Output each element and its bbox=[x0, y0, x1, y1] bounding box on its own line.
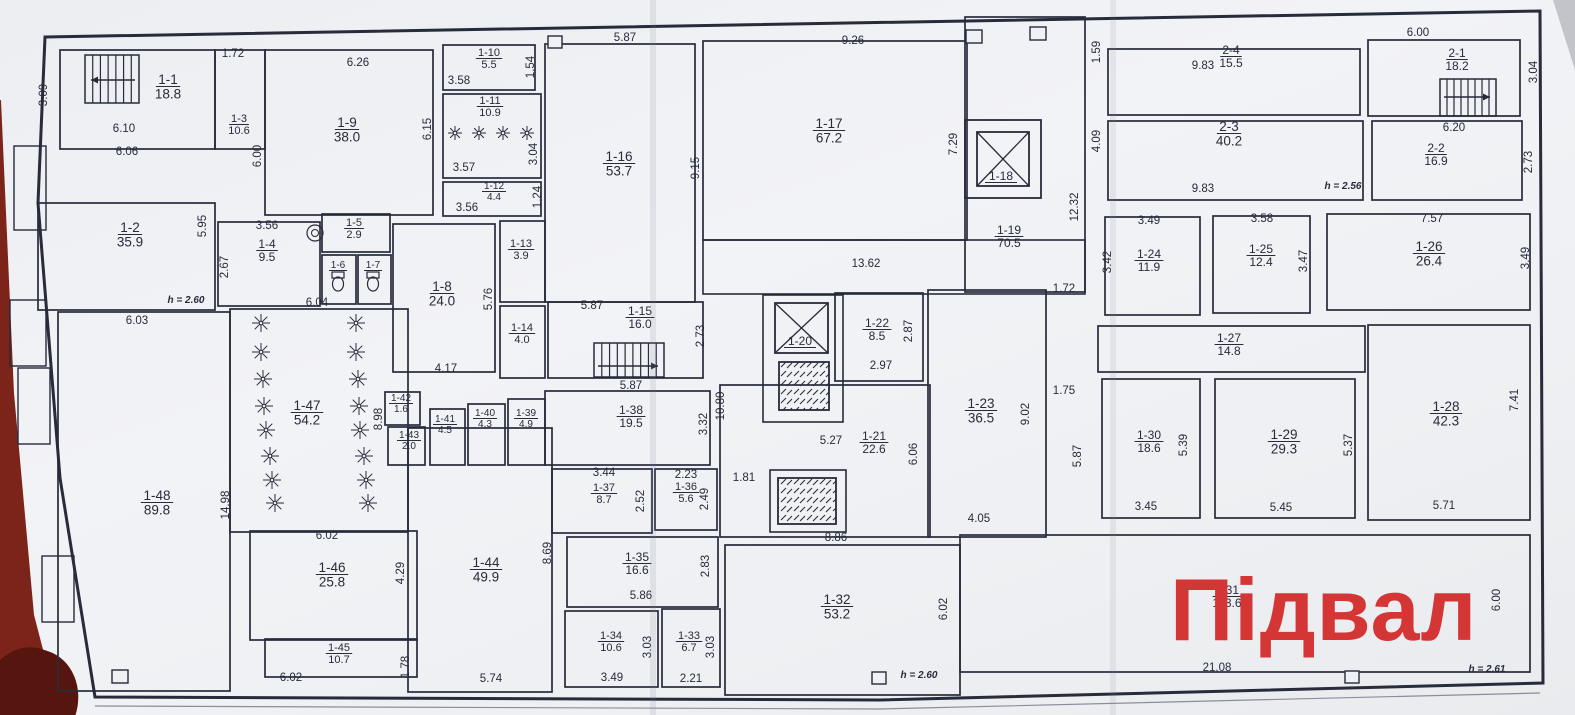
dimension-label: 1.75 bbox=[1053, 385, 1075, 397]
room-id: 1-9 bbox=[337, 115, 357, 130]
room-id: 1-40 bbox=[475, 408, 495, 419]
room-area: 67.2 bbox=[816, 131, 842, 146]
dimension-label: 5.37 bbox=[1343, 434, 1355, 456]
dimension-label: 3.03 bbox=[642, 636, 654, 658]
fixture-symbol bbox=[472, 126, 486, 140]
room-area: 4.5 bbox=[438, 425, 452, 436]
wall-pier bbox=[1030, 27, 1046, 40]
dimension-label: 21.08 bbox=[1203, 662, 1232, 674]
room-1-43: 1-432.0 bbox=[388, 427, 425, 465]
dimension-label: 6.03 bbox=[126, 315, 148, 327]
room-id: 1-44 bbox=[472, 555, 500, 570]
dimension-label: 14.98 bbox=[220, 491, 232, 520]
height-note: h = 2.56 bbox=[1325, 181, 1362, 192]
sink-symbol bbox=[312, 230, 319, 237]
dimension-label: 3.04 bbox=[528, 142, 540, 165]
room-1-9: 1-938.0 bbox=[265, 50, 433, 215]
dimension-label: 3.44 bbox=[593, 467, 616, 479]
dimension-label: 3.45 bbox=[1135, 501, 1157, 513]
room-area: 19.5 bbox=[619, 416, 643, 430]
floorplan-svg: 1-118.81-310.61-938.01-235.91-49.51-52.9… bbox=[0, 0, 1575, 715]
room-area: 8.7 bbox=[596, 494, 611, 506]
room-area: 54.2 bbox=[294, 413, 320, 428]
dimension-label: 2.23 bbox=[675, 469, 697, 481]
room-id: 1-34 bbox=[600, 630, 622, 642]
room-area: 25.8 bbox=[319, 575, 345, 590]
room-id: 1-24 bbox=[1137, 247, 1161, 261]
wall-outline bbox=[703, 240, 1085, 294]
window-bay bbox=[18, 368, 50, 444]
height-note: h = 2.60 bbox=[901, 670, 938, 681]
room-id: 1-41 bbox=[435, 414, 455, 425]
dimension-label: 7.57 bbox=[1421, 213, 1443, 225]
paper-fold-line bbox=[1110, 0, 1116, 715]
room-1-7: 1-7 bbox=[358, 255, 391, 304]
room-1-44: 1-4449.9 bbox=[408, 428, 552, 692]
room-id: 1-47 bbox=[293, 398, 320, 413]
room-id: 1-15 bbox=[628, 304, 652, 318]
room-1-38: 1-3819.5 bbox=[545, 391, 710, 465]
dimension-label: 5.87 bbox=[614, 32, 636, 44]
room-id: 1-1 bbox=[158, 72, 178, 87]
dimension-label: 9.02 bbox=[1020, 403, 1032, 425]
room-area: 18.2 bbox=[1445, 59, 1469, 73]
room-1-1: 1-118.8 bbox=[60, 50, 215, 149]
room-area: 10.7 bbox=[328, 654, 349, 666]
room-id: 1-19 bbox=[997, 223, 1021, 237]
dimension-label: 1.54 bbox=[525, 55, 537, 78]
room-area: 4.0 bbox=[514, 334, 529, 346]
room-id: 1-23 bbox=[967, 396, 994, 411]
room-id: 1-2 bbox=[120, 220, 140, 235]
dimension-label: 6.00 bbox=[252, 145, 264, 167]
room-id: 1-45 bbox=[328, 642, 350, 654]
dimension-label: 8.69 bbox=[542, 542, 554, 564]
fixture-symbol bbox=[349, 370, 367, 388]
room-area: 15.5 bbox=[1219, 56, 1243, 70]
fixture-symbol bbox=[263, 471, 281, 489]
dimension-label: 6.02 bbox=[280, 672, 302, 684]
stair-direction-arrow bbox=[91, 77, 98, 84]
fixture-symbol bbox=[520, 126, 534, 140]
dimension-label: 6.26 bbox=[347, 57, 369, 69]
room-area: 5.5 bbox=[481, 59, 496, 71]
room-1-28: 1-2842.3 bbox=[1368, 325, 1530, 520]
dimension-label: 4.29 bbox=[395, 562, 407, 584]
dimension-label: 12.32 bbox=[1069, 193, 1081, 222]
dimension-label: 6.15 bbox=[422, 118, 434, 140]
dimension-label: 5.71 bbox=[1433, 500, 1455, 512]
room-id: 1-3 bbox=[231, 113, 247, 125]
dimension-label: 1.78 bbox=[400, 656, 412, 678]
dimension-label: 2.52 bbox=[635, 490, 647, 512]
room-id: 1-17 bbox=[815, 116, 842, 131]
dimension-label: 3.49 bbox=[1138, 215, 1160, 227]
fixture-symbol bbox=[357, 471, 375, 489]
fixture-symbol bbox=[496, 126, 510, 140]
dimension-label: 2.49 bbox=[699, 488, 711, 510]
dimension-label: 5.87 bbox=[581, 300, 603, 312]
dimension-label: 4.09 bbox=[1091, 130, 1103, 152]
fixture-symbol bbox=[261, 447, 279, 465]
wall-pier bbox=[112, 670, 128, 683]
height-note: h = 2.60 bbox=[168, 295, 205, 306]
dimension-label: 6.20 bbox=[1443, 122, 1465, 134]
room-area: 53.2 bbox=[824, 607, 850, 622]
room-id: 1-10 bbox=[478, 47, 500, 59]
dimension-label: 3.49 bbox=[1520, 247, 1532, 269]
wall-pier bbox=[548, 36, 562, 48]
room-area: 29.3 bbox=[1271, 442, 1297, 457]
room-area: 16.6 bbox=[625, 563, 649, 577]
floorplan-photo: 1-118.81-310.61-938.01-235.91-49.51-52.9… bbox=[0, 0, 1575, 715]
toilet-symbol bbox=[367, 272, 379, 291]
room-1-14: 1-144.0 bbox=[500, 306, 545, 378]
room-id: 2-2 bbox=[1427, 141, 1445, 155]
staircase bbox=[85, 55, 139, 103]
room-id: 1-38 bbox=[619, 403, 643, 417]
room-area: 26.4 bbox=[1416, 254, 1443, 269]
room-2-1: 2-118.2 bbox=[1368, 40, 1520, 116]
fixture-symbol bbox=[252, 343, 270, 361]
room-area: 49.9 bbox=[473, 570, 499, 585]
room-area: 10.6 bbox=[228, 125, 249, 137]
dimension-label: 3.03 bbox=[705, 636, 717, 658]
dimension-label: 3.56 bbox=[456, 202, 478, 214]
dimension-label: 4.05 bbox=[968, 513, 990, 525]
room-1-39: 1-394.9 bbox=[508, 399, 545, 465]
dimension-label: 8.86 bbox=[825, 532, 847, 544]
dimension-label: 6.10 bbox=[113, 123, 135, 135]
room-area: 11.9 bbox=[1138, 260, 1161, 274]
dimension-label: 5.74 bbox=[480, 673, 503, 685]
room-id: 1-33 bbox=[678, 630, 700, 642]
dimension-label: 3.58 bbox=[1251, 213, 1273, 225]
room-1-4: 1-49.5 bbox=[218, 222, 320, 306]
room-id: 2-3 bbox=[1219, 119, 1239, 134]
dimension-label: 5.39 bbox=[1178, 434, 1190, 456]
room-area: 42.3 bbox=[1433, 414, 1459, 429]
room-1-27: 1-2714.8 bbox=[1098, 326, 1365, 372]
room-id: 1-27 bbox=[1217, 331, 1241, 345]
room-area: 10.6 bbox=[600, 642, 621, 654]
dimension-label: 3.58 bbox=[448, 75, 470, 87]
dimension-label: 6.06 bbox=[908, 443, 920, 465]
dimension-label: 9.83 bbox=[1192, 183, 1214, 195]
staircase bbox=[594, 343, 664, 377]
dimension-label: 3.32 bbox=[698, 413, 710, 435]
dimension-label: 10.80 bbox=[715, 392, 727, 421]
room-area: 2.0 bbox=[402, 441, 416, 452]
dimension-label: 5.87 bbox=[620, 380, 642, 392]
dimension-label: 6.00 bbox=[1407, 27, 1429, 39]
room-1-5: 1-52.9 bbox=[322, 214, 390, 252]
dimension-label: 5.87 bbox=[1072, 445, 1084, 467]
fixture-symbol bbox=[255, 397, 273, 415]
elevator-shaft: 1-20 bbox=[775, 303, 828, 353]
room-area: 40.2 bbox=[1216, 134, 1242, 149]
room-id: 1-12 bbox=[484, 181, 504, 192]
dimension-label: 5.95 bbox=[197, 215, 209, 237]
room-id: 1-30 bbox=[1137, 428, 1161, 442]
dimension-label: 3.42 bbox=[1102, 251, 1114, 273]
room-1-42: 1-421.6 bbox=[385, 392, 420, 425]
room-id: 1-37 bbox=[593, 482, 615, 494]
room-id: 1-48 bbox=[143, 488, 170, 503]
room-id: 2-4 bbox=[1222, 43, 1240, 57]
room-area: 2.9 bbox=[346, 229, 361, 241]
room-area: 53.7 bbox=[606, 164, 632, 179]
room-id: 1-21 bbox=[862, 429, 886, 443]
dimension-label: 1.59 bbox=[1091, 41, 1103, 63]
room-area: 18.6 bbox=[1137, 441, 1161, 455]
room-id: 1-16 bbox=[605, 149, 632, 164]
room-1-41: 1-414.5 bbox=[430, 409, 465, 465]
room-area: 5.6 bbox=[678, 493, 693, 505]
room-1-17: 1-1767.2 bbox=[703, 41, 967, 240]
dimension-label: 2.21 bbox=[680, 673, 702, 685]
room-1-19: 1-1970.5 bbox=[965, 17, 1085, 292]
fixture-symbol bbox=[257, 421, 275, 439]
room-id: 1-14 bbox=[511, 322, 533, 334]
room-area: 14.8 bbox=[1217, 344, 1241, 358]
wall-pier bbox=[872, 672, 886, 684]
fixture-symbol bbox=[355, 447, 373, 465]
fixture-symbol bbox=[254, 370, 272, 388]
fixture-symbol bbox=[347, 343, 365, 361]
fixture-symbol bbox=[266, 494, 284, 512]
dimension-label: 5.86 bbox=[630, 590, 652, 602]
room-id: 1-26 bbox=[1415, 239, 1442, 254]
fixture-symbol bbox=[350, 397, 368, 415]
room-id: 1-29 bbox=[1270, 427, 1297, 442]
wall-pier bbox=[966, 30, 982, 43]
room-area: 70.5 bbox=[997, 236, 1021, 250]
room-area: 4.4 bbox=[487, 192, 501, 203]
toilet-symbol bbox=[332, 272, 344, 291]
room-id: 1-20 bbox=[788, 334, 812, 348]
dimension-label: 8.98 bbox=[373, 408, 385, 430]
fixture-symbol bbox=[359, 494, 377, 512]
dimension-label: 7.41 bbox=[1509, 389, 1521, 411]
room-1-46: 1-4625.8 bbox=[250, 531, 417, 640]
room-id: 1-4 bbox=[258, 237, 276, 251]
room-id: 1-35 bbox=[625, 550, 649, 564]
room-area: 8.5 bbox=[869, 329, 886, 343]
dimension-label: 6.00 bbox=[1491, 589, 1503, 611]
fixture-symbol bbox=[351, 421, 369, 439]
room-id: 1-28 bbox=[1432, 399, 1459, 414]
dimension-label: 1.72 bbox=[222, 48, 244, 60]
wall-pier bbox=[1345, 671, 1359, 683]
room-1-13: 1-133.9 bbox=[500, 221, 545, 302]
room-1-29: 1-2929.3 bbox=[1215, 379, 1355, 518]
dimension-label: 7.29 bbox=[948, 133, 960, 155]
dimension-label: 1.72 bbox=[1053, 283, 1075, 295]
floor-title: Підвал bbox=[1170, 560, 1477, 659]
fixture-symbol bbox=[252, 314, 270, 332]
room-1-25: 1-2512.4 bbox=[1213, 216, 1310, 313]
room-area: 16.0 bbox=[628, 317, 652, 331]
room-id: 1-8 bbox=[432, 279, 452, 294]
dimension-label: 3.09 bbox=[38, 84, 50, 106]
room-id: 1-7 bbox=[366, 260, 381, 271]
staircase bbox=[1440, 79, 1496, 116]
room-area: 16.9 bbox=[1424, 154, 1448, 168]
room-id: 1-36 bbox=[675, 481, 697, 493]
dimension-label: 2.67 bbox=[219, 256, 231, 278]
room-id: 1-13 bbox=[510, 238, 532, 250]
room-area: 35.9 bbox=[117, 235, 143, 250]
room-1-40: 1-404.3 bbox=[468, 404, 505, 465]
dimension-label: 4.17 bbox=[435, 363, 457, 375]
room-1-16: 1-1653.7 bbox=[545, 44, 695, 302]
room-area: 6.7 bbox=[681, 642, 696, 654]
room-area: 89.8 bbox=[144, 503, 170, 518]
room-area: 3.9 bbox=[513, 250, 528, 262]
room-1-26: 1-2626.4 bbox=[1327, 214, 1530, 310]
room-area: 12.4 bbox=[1249, 255, 1273, 269]
dimension-label: 6.02 bbox=[938, 598, 950, 620]
room-area: 36.5 bbox=[968, 411, 994, 426]
dimension-label: 3.04 bbox=[1528, 60, 1540, 83]
dimension-label: 2.73 bbox=[695, 325, 707, 347]
room-id: 1-5 bbox=[346, 217, 362, 229]
dimension-label: 9.26 bbox=[842, 35, 864, 47]
dimension-label: 1.81 bbox=[733, 472, 755, 484]
room-id: 1-25 bbox=[1249, 242, 1273, 256]
dimension-label: 2.87 bbox=[903, 320, 915, 342]
dimension-label: 3.56 bbox=[256, 220, 278, 232]
elevator-shaft: 1-18 bbox=[965, 120, 1041, 198]
room-id: 1-43 bbox=[399, 430, 419, 441]
dimension-label: 3.47 bbox=[1298, 250, 1310, 272]
room-1-3: 1-310.6 bbox=[215, 50, 265, 149]
room-id: 1-46 bbox=[318, 560, 345, 575]
dimension-label: 6.06 bbox=[116, 146, 138, 158]
dimension-label: 6.04 bbox=[306, 297, 329, 309]
room-id: 1-22 bbox=[865, 316, 889, 330]
dimension-label: 3.49 bbox=[601, 672, 623, 684]
dimension-label: 1.24 bbox=[532, 185, 544, 208]
dimension-label: 5.76 bbox=[483, 288, 495, 310]
room-area: 24.0 bbox=[429, 294, 455, 309]
height-note: h = 2.61 bbox=[1469, 664, 1506, 675]
room-id: 1-39 bbox=[516, 408, 536, 419]
vent-shaft-hatched bbox=[779, 362, 829, 410]
dimension-label: 3.57 bbox=[453, 162, 475, 174]
fixture-symbol bbox=[448, 126, 462, 140]
dimension-label: 13.62 bbox=[852, 258, 881, 270]
room-area: 18.8 bbox=[155, 87, 181, 102]
dimension-label: 5.45 bbox=[1270, 502, 1292, 514]
room-area: 9.5 bbox=[259, 250, 276, 264]
dimension-label: 5.27 bbox=[820, 435, 842, 447]
room-2-4: 2-415.5 bbox=[1108, 43, 1360, 115]
fixture-symbol bbox=[347, 314, 365, 332]
room-id: 1-18 bbox=[989, 169, 1013, 183]
room-1-24: 1-2411.9 bbox=[1105, 217, 1200, 315]
dimension-label: 2.97 bbox=[870, 360, 892, 372]
dimension-label: 9.83 bbox=[1192, 60, 1214, 72]
dimension-label: 9.15 bbox=[690, 157, 702, 179]
room-1-2: 1-235.9 bbox=[38, 203, 215, 310]
dimension-label: 2.83 bbox=[700, 555, 712, 577]
room-area: 10.9 bbox=[479, 107, 500, 119]
room-id: 1-6 bbox=[331, 260, 346, 271]
dimension-label: 2.73 bbox=[1523, 151, 1535, 173]
room-id: 1-11 bbox=[479, 95, 500, 107]
stair-direction-arrow bbox=[651, 363, 658, 370]
room-area: 38.0 bbox=[334, 130, 360, 145]
vent-shaft-hatched bbox=[778, 478, 836, 524]
room-area: 22.6 bbox=[862, 442, 886, 456]
room-id: 1-32 bbox=[823, 592, 850, 607]
dimension-label: 6.02 bbox=[316, 530, 338, 542]
room-area: 1.6 bbox=[394, 404, 408, 415]
room-id: 2-1 bbox=[1448, 46, 1466, 60]
